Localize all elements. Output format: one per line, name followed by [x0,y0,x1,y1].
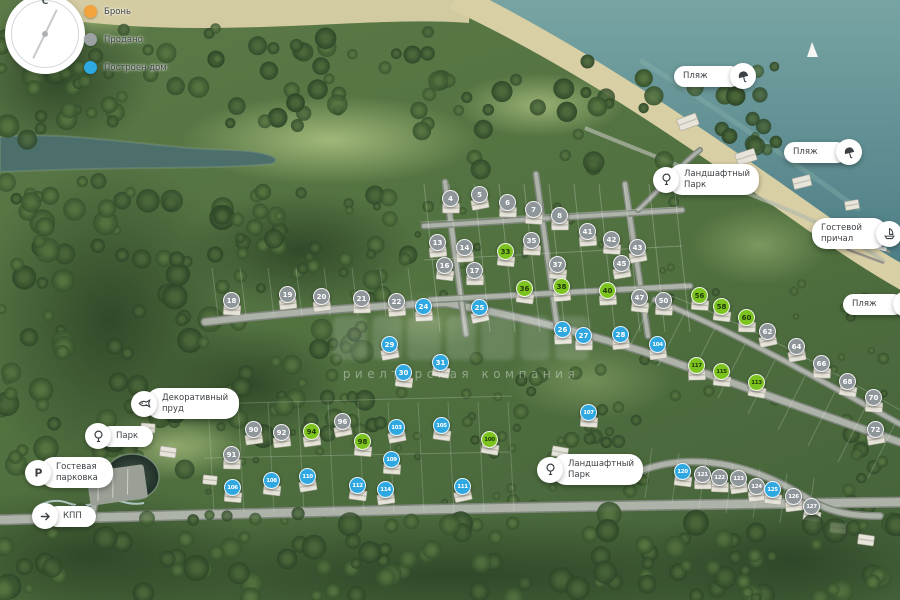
lot-marker-113[interactable]: 113 [748,374,765,391]
lot-marker-40[interactable]: 40 [599,282,616,299]
lot-marker-115[interactable]: 115 [713,363,730,380]
tree-icon [537,457,563,483]
legend-dot-sold [84,33,97,46]
lot-marker-25[interactable]: 25 [471,299,488,316]
compass-hub [42,31,48,37]
lot-marker-110[interactable]: 110 [299,468,316,485]
map-label-text: Ландшафтный Парк [568,459,634,480]
map-label-text: Пляж [793,147,818,157]
lot-marker-24[interactable]: 24 [415,298,432,315]
lot-marker-36[interactable]: 36 [516,280,533,297]
lot-marker-72[interactable]: 72 [867,421,884,438]
lot-marker-37[interactable]: 37 [549,256,566,273]
lot-marker-27[interactable]: 27 [575,327,592,344]
lot-marker-13[interactable]: 13 [429,234,446,251]
lot-marker-30[interactable]: 30 [395,364,412,381]
arrow-icon [32,503,58,529]
lot-marker-20[interactable]: 20 [313,288,330,305]
lot-marker-56[interactable]: 56 [691,287,708,304]
lot-marker-91[interactable]: 91 [223,446,240,463]
lot-marker-62[interactable]: 62 [759,323,776,340]
lot-marker-4[interactable]: 4 [442,190,459,207]
lot-marker-50[interactable]: 50 [655,292,672,309]
lot-marker-18[interactable]: 18 [223,292,240,309]
parking-icon: Р [25,460,51,486]
lot-marker-120[interactable]: 120 [674,463,691,480]
tree-icon [653,167,679,193]
legend-label: Построен дом [104,63,167,73]
map-label-text: Гостевой причал [821,223,862,244]
map-label-text: Парк [116,431,138,441]
lot-marker-112[interactable]: 112 [349,477,366,494]
lot-marker-121[interactable]: 121 [694,466,711,483]
map-label-decorative-pond: Декоративный пруд [146,388,239,419]
lot-marker-117[interactable]: 117 [688,357,705,374]
lot-marker-38[interactable]: 38 [553,278,570,295]
lot-marker-64[interactable]: 64 [788,338,805,355]
map-label-text: Пляж [683,71,708,81]
map-label-guest-pier: Гостевой причал [812,218,887,249]
lot-marker-111[interactable]: 111 [454,478,471,495]
umbrella-icon [893,291,900,317]
lot-marker-33[interactable]: 33 [497,243,514,260]
lot-marker-5[interactable]: 5 [471,186,488,203]
legend-item-built: Построен дом [84,61,167,74]
lot-marker-92[interactable]: 92 [273,424,290,441]
map-label-beach-1: Пляж [674,66,741,87]
lot-marker-98[interactable]: 98 [354,433,371,450]
lot-marker-7[interactable]: 7 [525,201,542,218]
lot-marker-28[interactable]: 28 [612,326,629,343]
lot-marker-114[interactable]: 114 [377,481,394,498]
lot-marker-35[interactable]: 35 [523,232,540,249]
lot-marker-47[interactable]: 47 [631,289,648,306]
lot-marker-68[interactable]: 68 [839,373,856,390]
compass-icon: С [5,0,85,74]
lot-marker-104[interactable]: 104 [649,336,666,353]
svg-text:Р: Р [34,467,42,480]
fish-icon [131,391,157,417]
lot-marker-6[interactable]: 6 [499,194,516,211]
lot-marker-70[interactable]: 70 [865,389,882,406]
lot-marker-107[interactable]: 107 [580,404,597,421]
masterplan-map: 4567813143335414243161737453638404718192… [0,0,900,600]
lot-marker-94[interactable]: 94 [303,423,320,440]
lot-marker-29[interactable]: 29 [381,336,398,353]
lot-marker-21[interactable]: 21 [353,290,370,307]
map-label-text: Гостевая парковка [56,462,98,483]
lot-marker-100[interactable]: 100 [481,431,498,448]
map-label-landscape-park-top: Ландшафтный Парк [668,164,759,195]
map-label-beach-3: Пляж [843,294,900,315]
lot-marker-123[interactable]: 123 [730,470,747,487]
lot-marker-103[interactable]: 103 [388,419,405,436]
lot-marker-66[interactable]: 66 [813,355,830,372]
lot-marker-31[interactable]: 31 [432,354,449,371]
map-label-beach-2: Пляж [784,142,847,163]
map-label-text: Декоративный пруд [162,393,228,414]
lot-marker-106[interactable]: 106 [224,479,241,496]
map-label-text: Ландшафтный Парк [684,169,750,190]
legend-item-reserved: Бронь [84,5,131,18]
umbrella-icon [730,63,756,89]
lot-marker-19[interactable]: 19 [279,286,296,303]
legend-label: Бронь [104,7,131,17]
umbrella-icon [836,139,862,165]
boat-icon [876,221,900,247]
legend-dot-built [84,61,97,74]
lot-marker-109[interactable]: 109 [383,451,400,468]
legend-dot-reserved [84,5,97,18]
map-label-guest-parking: Гостевая парковкаР [40,457,113,488]
lot-marker-58[interactable]: 58 [713,298,730,315]
lot-marker-8[interactable]: 8 [551,207,568,224]
lot-marker-41[interactable]: 41 [579,223,596,240]
lot-marker-60[interactable]: 60 [738,309,755,326]
lot-marker-14[interactable]: 14 [456,239,473,256]
legend-label: Продано [104,35,143,45]
lot-marker-96[interactable]: 96 [334,413,351,430]
map-label-landscape-park-bottom: Ландшафтный Парк [552,454,643,485]
lot-marker-122[interactable]: 122 [711,469,728,486]
legend-item-sold: Продано [84,33,143,46]
map-label-text: Пляж [852,299,877,309]
lot-marker-125[interactable]: 125 [764,481,781,498]
compass-north-letter: С [42,0,49,7]
legend: С БроньПроданоПостроен дом [0,0,200,100]
lot-marker-43[interactable]: 43 [629,239,646,256]
lot-marker-22[interactable]: 22 [388,293,405,310]
map-label-park: Парк [100,426,153,447]
lot-marker-108[interactable]: 108 [263,472,280,489]
map-label-checkpoint: КПП [47,506,96,527]
lot-marker-105[interactable]: 105 [433,417,450,434]
lot-marker-26[interactable]: 26 [554,321,571,338]
lot-marker-45[interactable]: 45 [613,255,630,272]
tree-icon [85,423,111,449]
lot-marker-126[interactable]: 126 [785,488,802,505]
lot-marker-42[interactable]: 42 [603,231,620,248]
lot-marker-90[interactable]: 90 [245,421,262,438]
lot-marker-124[interactable]: 124 [748,478,765,495]
map-label-text: КПП [63,511,82,521]
lot-marker-127[interactable]: 127 [803,498,820,515]
lot-marker-16[interactable]: 16 [436,257,453,274]
lot-marker-17[interactable]: 17 [466,262,483,279]
